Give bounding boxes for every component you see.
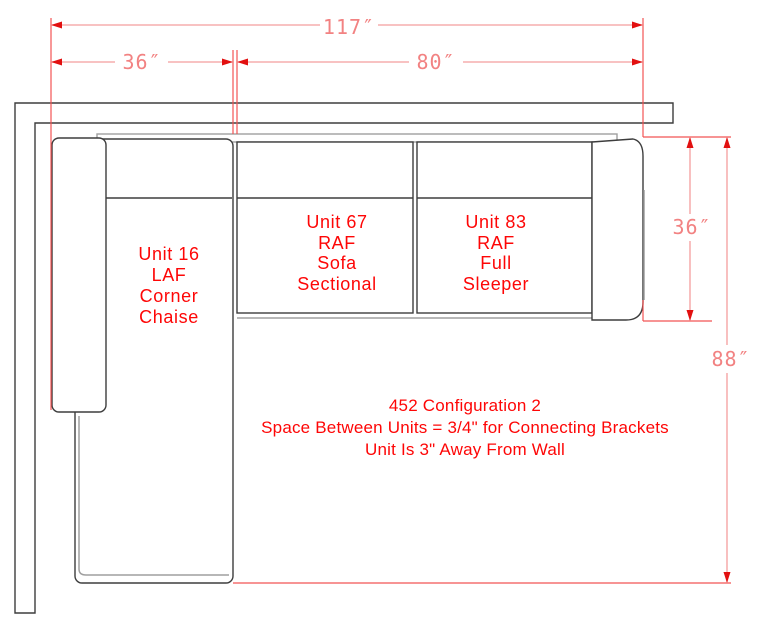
unit-label-line: Chaise	[138, 307, 199, 328]
unit-label-line: Unit 16	[138, 244, 199, 265]
note-line-title: 452 Configuration 2	[261, 395, 669, 417]
dim-label-total-width: 117″	[321, 17, 377, 37]
arrowhead	[51, 22, 62, 29]
unit-label-line: Sectional	[297, 274, 376, 295]
arrowhead	[632, 22, 643, 29]
arrowhead	[724, 137, 731, 148]
unit-16-label: Unit 16 LAF Corner Chaise	[138, 244, 199, 328]
arrowhead	[237, 59, 248, 66]
configuration-notes: 452 Configuration 2 Space Between Units …	[261, 395, 669, 461]
dim-label-sofa-width: 80″	[414, 52, 457, 72]
unit-label-line: Sleeper	[463, 274, 529, 295]
unit-label-line: Sofa	[297, 253, 376, 274]
note-line-spacing: Space Between Units = 3/4" for Connectin…	[261, 417, 669, 439]
sectional-plan-drawing	[0, 0, 758, 637]
dim-label-chaise-width: 36″	[120, 52, 163, 72]
arrowhead	[724, 572, 731, 583]
unit-label-line: Full	[463, 253, 529, 274]
dim-label-total-depth: 88″	[709, 349, 752, 369]
arrowhead	[687, 310, 694, 321]
note-line-wall-offset: Unit Is 3" Away From Wall	[261, 439, 669, 461]
unit83-right-arm	[592, 139, 643, 320]
unit-67-label: Unit 67 RAF Sofa Sectional	[297, 212, 376, 294]
floorplan-canvas: 117″ 36″ 80″ 36″ 88″ Unit 16 LAF Corner …	[0, 0, 758, 637]
unit16-left-arm	[52, 138, 106, 412]
arrowhead	[222, 59, 233, 66]
arrowhead	[632, 59, 643, 66]
unit-label-line: Unit 67	[297, 212, 376, 233]
arrowhead	[51, 59, 62, 66]
unit-83-label: Unit 83 RAF Full Sleeper	[463, 212, 529, 294]
dim-label-sofa-depth: 36″	[670, 217, 713, 237]
unit-label-line: LAF	[138, 265, 199, 286]
unit-label-line: Unit 83	[463, 212, 529, 233]
arrowhead	[687, 137, 694, 148]
unit-label-line: Corner	[138, 286, 199, 307]
unit-label-line: RAF	[463, 233, 529, 254]
unit-label-line: RAF	[297, 233, 376, 254]
